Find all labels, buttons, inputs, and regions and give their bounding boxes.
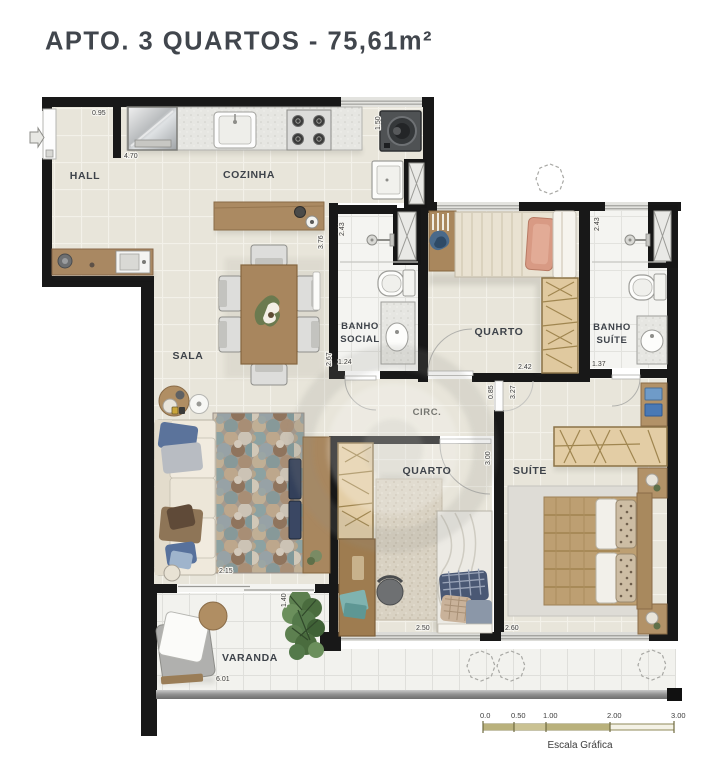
svg-text:2.42: 2.42 [518, 364, 532, 371]
svg-text:2.67: 2.67 [326, 352, 333, 366]
svg-text:SOCIAL: SOCIAL [340, 334, 380, 345]
svg-text:3.00: 3.00 [485, 451, 492, 465]
svg-text:4.70: 4.70 [124, 153, 138, 160]
svg-text:1.50: 1.50 [375, 116, 382, 130]
svg-text:QUARTO: QUARTO [403, 465, 452, 477]
svg-text:2.50: 2.50 [416, 625, 430, 632]
svg-text:COZINHA: COZINHA [223, 169, 275, 181]
svg-text:1.37: 1.37 [592, 361, 606, 368]
svg-text:Escala Gráfica: Escala Gráfica [547, 740, 612, 751]
svg-text:6.01: 6.01 [216, 676, 230, 683]
svg-text:0.0: 0.0 [480, 711, 490, 720]
svg-text:0.50: 0.50 [511, 711, 526, 720]
svg-text:3.27: 3.27 [510, 385, 517, 399]
svg-text:SUÍTE: SUÍTE [597, 335, 628, 346]
svg-text:3.76: 3.76 [318, 235, 325, 249]
svg-text:BANHO: BANHO [593, 322, 631, 333]
svg-text:0.85: 0.85 [488, 385, 495, 399]
svg-text:APTO. 3 QUARTOS - 75,61m²: APTO. 3 QUARTOS - 75,61m² [45, 28, 433, 56]
svg-text:1.40: 1.40 [281, 593, 288, 607]
svg-text:HALL: HALL [70, 170, 100, 182]
svg-text:QUARTO: QUARTO [475, 326, 524, 338]
svg-text:BANHO: BANHO [341, 321, 379, 332]
svg-text:1.24: 1.24 [338, 359, 352, 366]
svg-text:2.43: 2.43 [339, 222, 346, 236]
svg-text:2.00: 2.00 [607, 711, 622, 720]
svg-text:1.00: 1.00 [543, 711, 558, 720]
svg-text:SALA: SALA [173, 350, 204, 362]
svg-text:3.00: 3.00 [671, 711, 686, 720]
svg-text:2.43: 2.43 [594, 217, 601, 231]
svg-text:2.60: 2.60 [505, 625, 519, 632]
svg-text:CIRC.: CIRC. [413, 407, 442, 418]
svg-text:2.15: 2.15 [219, 568, 233, 575]
svg-text:SUÍTE: SUÍTE [513, 464, 547, 477]
svg-text:VARANDA: VARANDA [222, 652, 278, 664]
svg-text:0.95: 0.95 [92, 110, 106, 117]
